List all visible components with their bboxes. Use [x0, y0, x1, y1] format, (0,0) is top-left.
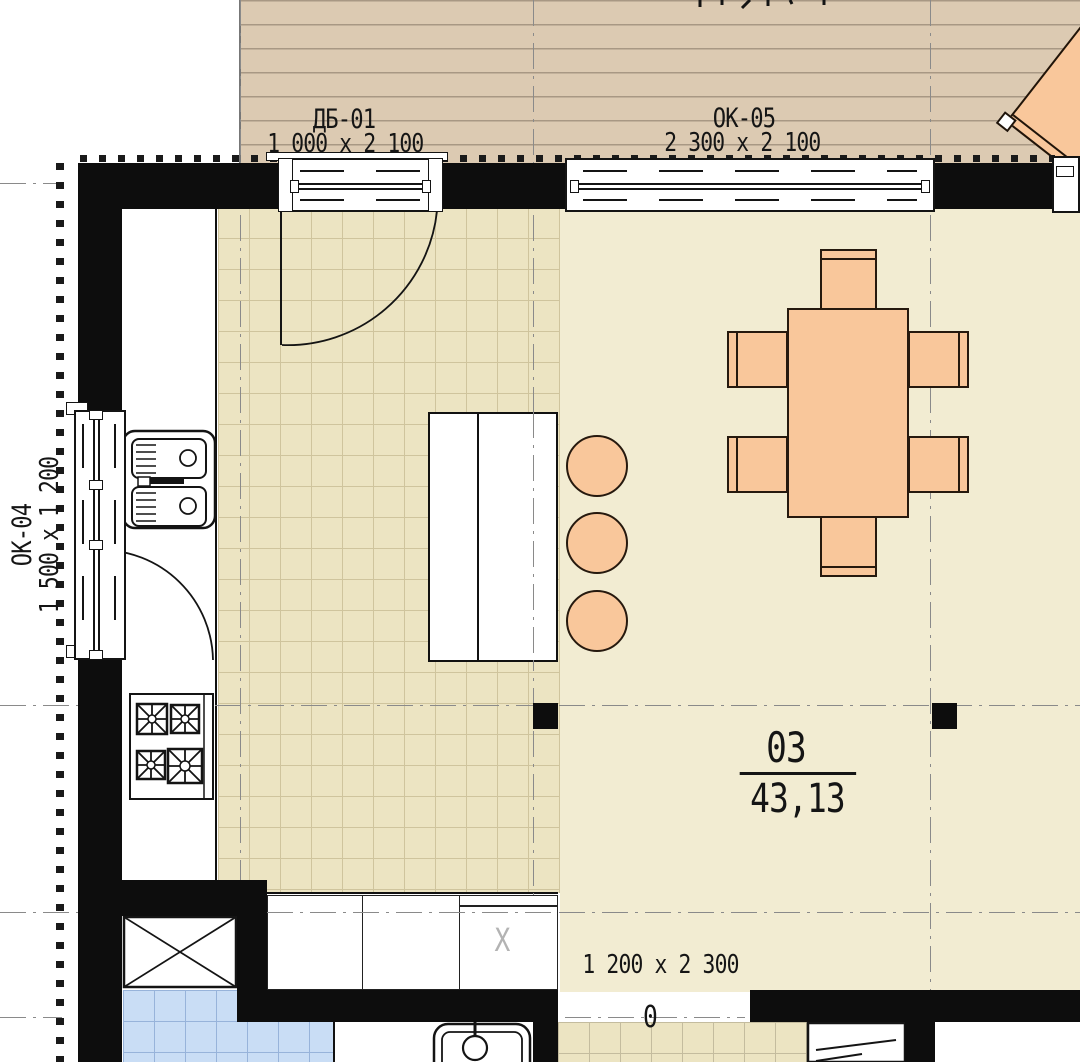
wall-top-right	[935, 163, 1055, 209]
window-ok05-size-label: 2 300 x 2 100	[664, 130, 812, 157]
floor-plan-canvas: ДБ-01 1 000 x 2 100 ОК-05 2 300 x 2 100 …	[0, 0, 1080, 1062]
wall-shaft-column	[237, 916, 267, 1022]
door-threshold-label: 0	[638, 1002, 663, 1034]
pier-stairs	[905, 1022, 935, 1062]
clipped-label-fragments	[700, 0, 824, 8]
room-number: 03	[718, 726, 853, 770]
wall-bottom-right	[750, 990, 1080, 1022]
window-ok04-size-label: 1 500 x 1 200	[37, 433, 64, 638]
column-a	[533, 703, 558, 729]
bathroom-sink	[434, 1022, 530, 1062]
room-label-divider	[739, 772, 855, 775]
window-db01	[278, 158, 443, 212]
window-ok04	[74, 410, 126, 660]
door-size-label: 1 200 x 2 300	[582, 952, 713, 979]
window-db01-size-label: 1 000 x 2 100	[267, 131, 415, 158]
stove	[130, 694, 213, 799]
window-ok04-label: ОК-04 1 500 x 1 200	[9, 433, 71, 638]
wall-left-upper	[78, 163, 122, 410]
column-b	[932, 703, 957, 729]
kitchen-sink	[123, 431, 215, 528]
wall-shaft-band	[122, 880, 267, 916]
cabinet-x-marker: X	[489, 924, 515, 958]
stairs	[808, 1023, 905, 1062]
door-swing-arc-db01	[281, 209, 437, 345]
pier-door-opening	[533, 1018, 558, 1062]
room-area: 43,13	[730, 778, 865, 820]
room-label: 03 43,13	[730, 726, 865, 820]
window-partial-right	[1052, 156, 1080, 213]
wall-left-lower	[78, 660, 122, 1062]
wall-bottom-left	[267, 990, 558, 1022]
ventilation-shaft	[124, 917, 236, 987]
window-ok05	[565, 158, 935, 212]
wall-top-middle	[443, 163, 565, 209]
window-ok04-code-label: ОК-04	[9, 433, 37, 638]
